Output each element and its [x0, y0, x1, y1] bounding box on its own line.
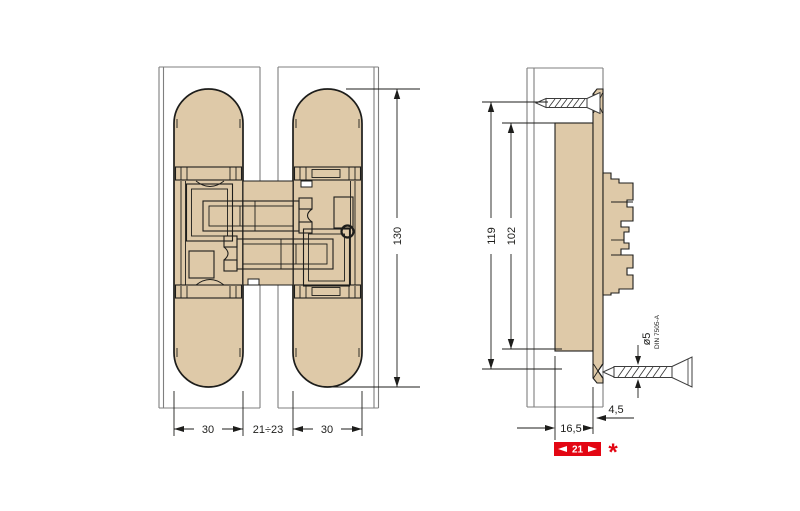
dim-total-depth-label: 21	[572, 445, 584, 456]
knuckle-stack	[603, 173, 633, 295]
hinge-body-side	[555, 123, 593, 351]
technical-drawing: 130 30 21÷23 30	[0, 0, 800, 511]
side-view: ø5 DIN 7505-A 119 102	[482, 68, 692, 466]
screw-standard-label: DIN 7505-A	[654, 314, 661, 349]
screw-callout: ø5 DIN 7505-A	[635, 314, 661, 398]
dimension-widths: 30 21÷23 30	[174, 391, 362, 436]
dim-hole-spacing-label: 119	[486, 227, 498, 245]
dim-width-left-label: 30	[202, 424, 214, 436]
dimension-119: 119	[482, 102, 562, 369]
dim-body-length-label: 102	[506, 227, 518, 245]
screw-top-icon	[536, 93, 600, 114]
dim-height-label: 130	[392, 227, 404, 245]
face-plate	[593, 89, 603, 383]
dim-width-right-label: 30	[321, 424, 333, 436]
screw-diameter-label: ø5	[641, 333, 653, 346]
front-view: 130 30 21÷23 30	[159, 67, 420, 436]
dimension-102: 102	[502, 123, 562, 349]
footnote-asterisk: *	[608, 439, 618, 466]
dim-gap-label: 21÷23	[253, 424, 284, 436]
dim-mortise-depth-label: 16,5	[560, 423, 581, 435]
hinge-technical-drawing-page: 130 30 21÷23 30	[0, 0, 800, 511]
dim-face-offset-label: 4,5	[608, 404, 623, 416]
screw-bottom-icon	[603, 357, 692, 387]
total-depth-highlight: 21 *	[554, 439, 618, 466]
